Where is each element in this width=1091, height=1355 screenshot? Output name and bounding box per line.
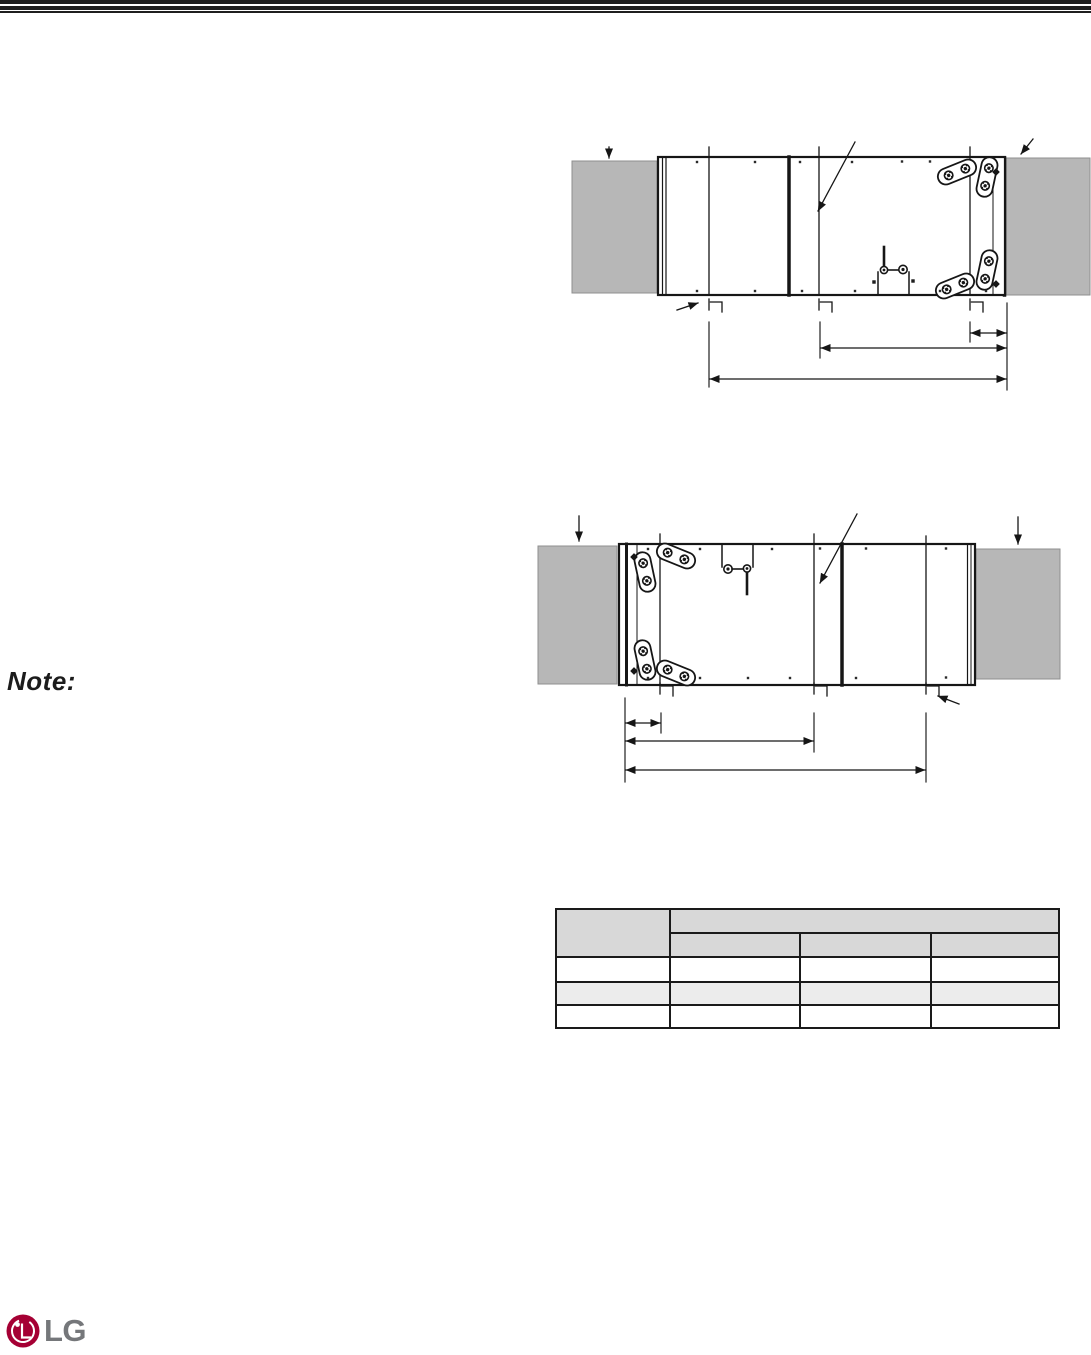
table-sub-header	[800, 933, 931, 957]
table-cell	[800, 957, 931, 982]
table-cell	[670, 982, 800, 1005]
figure-top-unit-view	[572, 139, 1090, 390]
table-sub-header	[670, 933, 800, 957]
table-corner-header	[556, 909, 670, 957]
table-group-header	[670, 909, 1059, 933]
diagram-layer	[0, 0, 1091, 1355]
table-cell	[931, 982, 1059, 1005]
table-cell	[800, 982, 931, 1005]
right-duct-panel	[976, 549, 1060, 679]
table-cell	[800, 1005, 931, 1028]
leader-arrow-bottom-left	[677, 303, 698, 310]
document-page: Note:	[0, 0, 1091, 1355]
lg-logo-icon	[5, 1313, 41, 1349]
lg-logo-text: LG	[44, 1313, 86, 1349]
table-cell	[670, 957, 800, 982]
table-cell	[556, 1005, 670, 1028]
table-cell	[556, 982, 670, 1005]
leader-arrow-bottom-right	[938, 696, 959, 704]
right-duct-panel	[1006, 158, 1090, 295]
table-sub-header	[931, 933, 1059, 957]
leader-arrow-right-panel	[1021, 139, 1033, 154]
table-cell	[931, 957, 1059, 982]
datum-corner-marks	[709, 299, 983, 312]
spec-table	[555, 908, 1060, 1029]
left-duct-panel	[572, 161, 657, 293]
dimension-lines	[709, 303, 1007, 390]
left-duct-panel	[538, 546, 617, 684]
table-cell	[931, 1005, 1059, 1028]
lg-logo: LG	[5, 1311, 145, 1355]
table-cell	[556, 957, 670, 982]
dimension-lines	[625, 698, 926, 782]
note-label: Note:	[7, 666, 76, 697]
table-cell	[670, 1005, 800, 1028]
figure-bottom-unit-view	[538, 514, 1060, 782]
